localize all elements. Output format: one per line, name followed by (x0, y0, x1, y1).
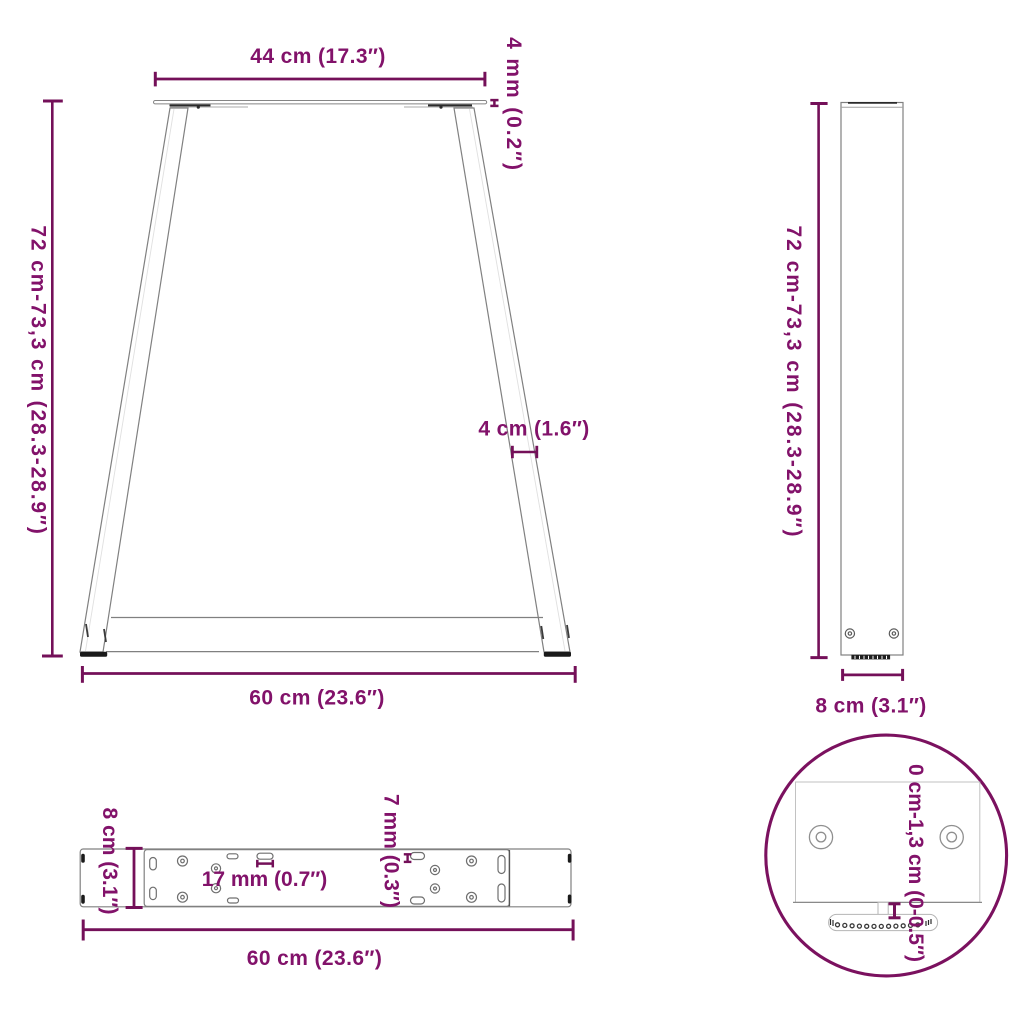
svg-text:72 cm-73,3 cm (28.3-28.9″): 72 cm-73,3 cm (28.3-28.9″) (782, 226, 805, 539)
svg-text:8 cm (3.1″): 8 cm (3.1″) (98, 808, 121, 915)
svg-text:4 mm (0.2″): 4 mm (0.2″) (502, 37, 525, 172)
svg-text:60 cm (23.6″): 60 cm (23.6″) (249, 687, 385, 710)
svg-text:17 mm (0.7″): 17 mm (0.7″) (202, 868, 328, 891)
svg-text:44 cm (17.3″): 44 cm (17.3″) (250, 45, 386, 68)
svg-text:72 cm-73,3 cm (28.3-28.9″): 72 cm-73,3 cm (28.3-28.9″) (27, 225, 50, 535)
svg-text:0 cm-1,3 cm (0-0.5″): 0 cm-1,3 cm (0-0.5″) (904, 764, 927, 962)
svg-text:7 mm (0.3″): 7 mm (0.3″) (380, 794, 403, 908)
svg-text:4 cm (1.6″): 4 cm (1.6″) (478, 418, 589, 441)
svg-text:60 cm (23.6″): 60 cm (23.6″) (247, 947, 383, 970)
svg-text:8 cm (3.1″): 8 cm (3.1″) (815, 695, 926, 718)
